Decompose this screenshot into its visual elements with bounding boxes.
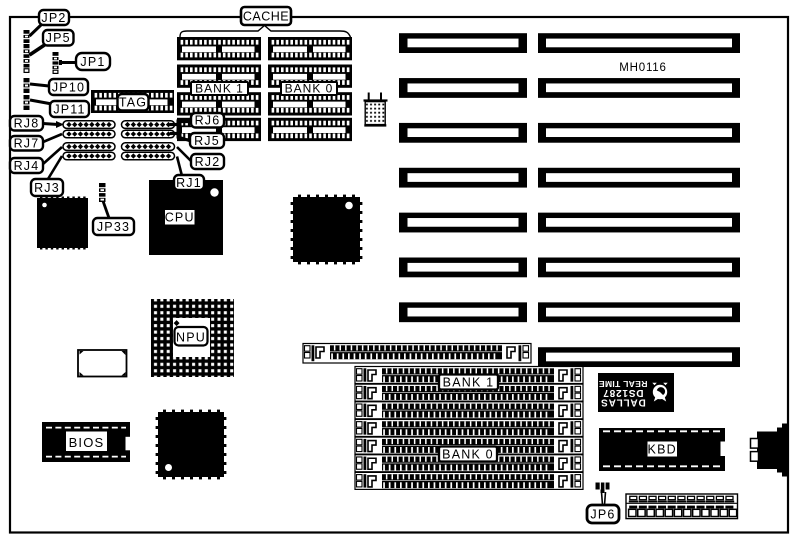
svg-text:TAG: TAG [119, 96, 147, 110]
svg-text:BANK 0: BANK 0 [285, 82, 334, 96]
svg-text:REAL TIME: REAL TIME [599, 379, 648, 389]
svg-text:JP5: JP5 [46, 31, 71, 45]
svg-text:CACHE: CACHE [243, 9, 289, 23]
svg-text:BANK 0: BANK 0 [442, 448, 494, 462]
svg-text:BIOS: BIOS [69, 435, 105, 450]
svg-text:RJ2: RJ2 [195, 155, 221, 169]
svg-text:JP11: JP11 [53, 102, 85, 116]
svg-text:KBD: KBD [648, 443, 677, 457]
svg-text:RJ1: RJ1 [176, 176, 202, 190]
svg-text:JP1: JP1 [80, 55, 105, 69]
svg-text:CPU: CPU [165, 211, 195, 225]
svg-text:JP6: JP6 [590, 507, 615, 521]
svg-text:RJ8: RJ8 [14, 117, 40, 131]
svg-text:NPU: NPU [176, 331, 206, 345]
svg-text:RJ4: RJ4 [14, 159, 40, 173]
svg-text:BANK 1: BANK 1 [443, 376, 495, 390]
svg-text:JP33: JP33 [97, 220, 130, 234]
svg-text:JP10: JP10 [52, 80, 85, 94]
svg-text:BANK 1: BANK 1 [195, 82, 244, 96]
svg-text:RJ3: RJ3 [34, 181, 60, 195]
svg-text:JP2: JP2 [41, 11, 66, 25]
svg-text:MH0116: MH0116 [619, 62, 666, 74]
svg-text:RJ6: RJ6 [195, 114, 221, 128]
svg-text:RJ7: RJ7 [14, 137, 40, 151]
svg-text:RJ5: RJ5 [194, 134, 220, 148]
